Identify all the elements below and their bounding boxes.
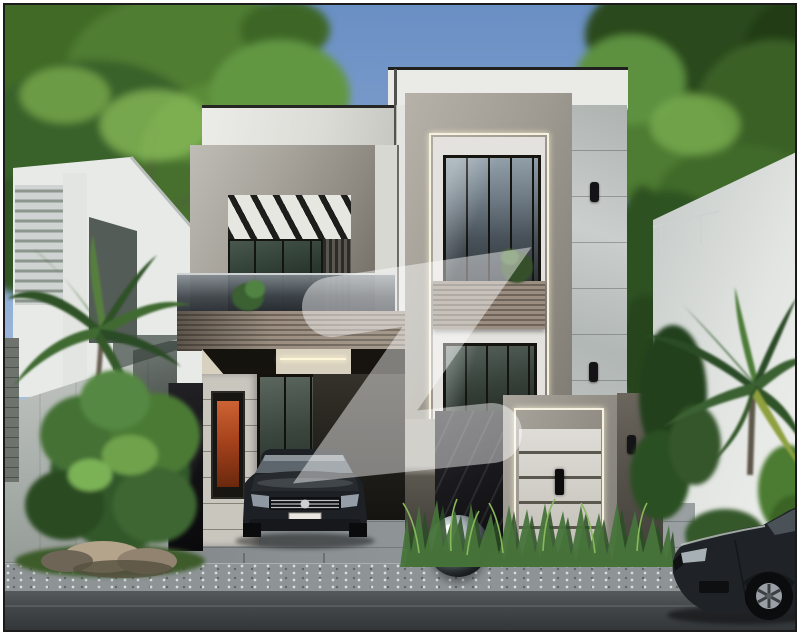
watermark <box>5 5 797 632</box>
render-image <box>3 3 797 632</box>
watermark-z-glyph <box>332 287 492 447</box>
render-frame <box>0 0 800 635</box>
